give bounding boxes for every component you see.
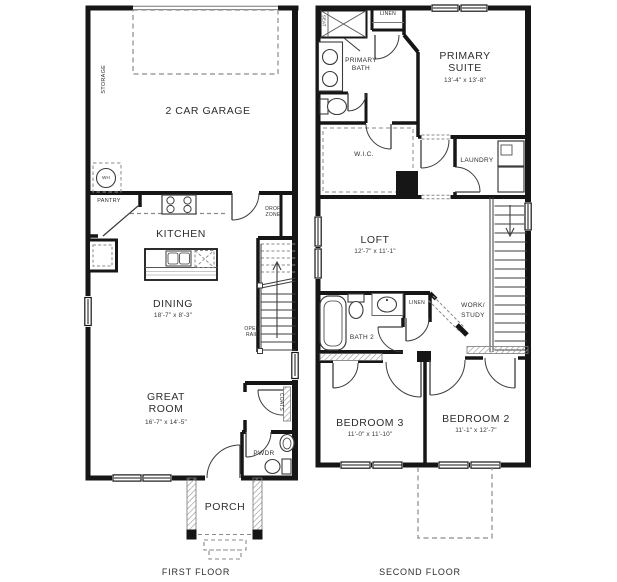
label-primary-bath: PRIMARY BATH (336, 57, 386, 72)
label-bath2: BATH 2 (337, 334, 387, 342)
sf-stairs (490, 197, 527, 352)
label-pantry: PANTRY (89, 198, 129, 204)
label-bedroom2-dims: 11'-1" x 12'-7" (426, 427, 526, 435)
label-work-study-2: STUDY (451, 312, 495, 320)
label-bedroom2: BEDROOM 2 (426, 413, 526, 425)
hall-post (417, 351, 431, 362)
label-powder: PWDR (244, 450, 284, 458)
label-great-dims: 16'-7" x 14'-5" (131, 419, 201, 427)
bath2-toilet-bowl (349, 302, 363, 319)
label-primary-suite: PRIMARY SUITE (430, 50, 500, 75)
storage-closet (89, 240, 117, 271)
label-dining-dims: 18'-7" x 8'-3" (133, 312, 213, 320)
label-laundry: LAUNDRY (455, 157, 499, 165)
sf-doors (333, 35, 515, 397)
bedroom2-closet-rod (467, 347, 528, 354)
label-loft: LOFT (335, 234, 415, 246)
floor-plan-page: STORAGE 2 CAR GARAGE WH PANTRY KITCHEN D… (0, 0, 617, 582)
primary-bath-fixtures (319, 42, 347, 115)
bath2-toilet-tank (348, 294, 364, 302)
label-water-heater: WH (96, 175, 116, 180)
caption-first-floor: FIRST FLOOR (136, 567, 256, 578)
label-bedroom3-dims: 11'-0" x 11'-10" (320, 431, 420, 439)
dryer (498, 167, 524, 192)
floor-plan-drawing (0, 0, 617, 582)
label-loft-dims: 12'-7" x 11'-1" (335, 248, 415, 256)
first-floor-plan (84, 6, 299, 560)
patio-outline (418, 467, 492, 538)
powder-toilet-bowl (265, 460, 280, 474)
label-bedroom3: BEDROOM 3 (320, 417, 420, 429)
label-wic: W.I.C. (334, 151, 394, 159)
label-linen-upper: LINEN (370, 12, 406, 18)
porch-steps (204, 540, 246, 550)
label-garage: 2 CAR GARAGE (148, 105, 268, 117)
garage-door-opening (133, 6, 278, 9)
porch-structure (187, 478, 263, 559)
label-storage: STORAGE (101, 59, 107, 99)
label-porch: PORCH (195, 501, 255, 513)
label-dining: DINING (133, 298, 213, 310)
label-suite-dims: 13'-4" x 13'-8" (425, 77, 505, 85)
front-door-opening (205, 474, 241, 482)
label-open-rail: OPEN RAIL (240, 327, 264, 339)
label-work-study-1: WORK/ (451, 302, 495, 310)
bedroom3-closet-rod (320, 354, 382, 361)
pantry-door (103, 206, 138, 236)
caption-second-floor: SECOND FLOOR (360, 567, 480, 578)
label-coats: COATS (277, 382, 283, 422)
powder-toilet-tank (282, 459, 291, 474)
garage-door-overhead-outline (133, 10, 278, 74)
kitchen-island (145, 249, 217, 280)
chase (396, 171, 418, 197)
label-kitchen: KITCHEN (141, 228, 221, 240)
label-drop-zone: DROP ZONE (259, 207, 287, 219)
label-seat: SEAT (321, 1, 326, 41)
kitchen-fixtures (130, 195, 228, 214)
label-linen-hall: LINEN (399, 301, 435, 307)
label-great-room: GREAT ROOM (138, 391, 194, 416)
toilet-tank (320, 99, 328, 114)
toilet-bowl (328, 99, 347, 115)
laundry-fixtures (498, 141, 524, 192)
coats-rod (284, 387, 291, 421)
